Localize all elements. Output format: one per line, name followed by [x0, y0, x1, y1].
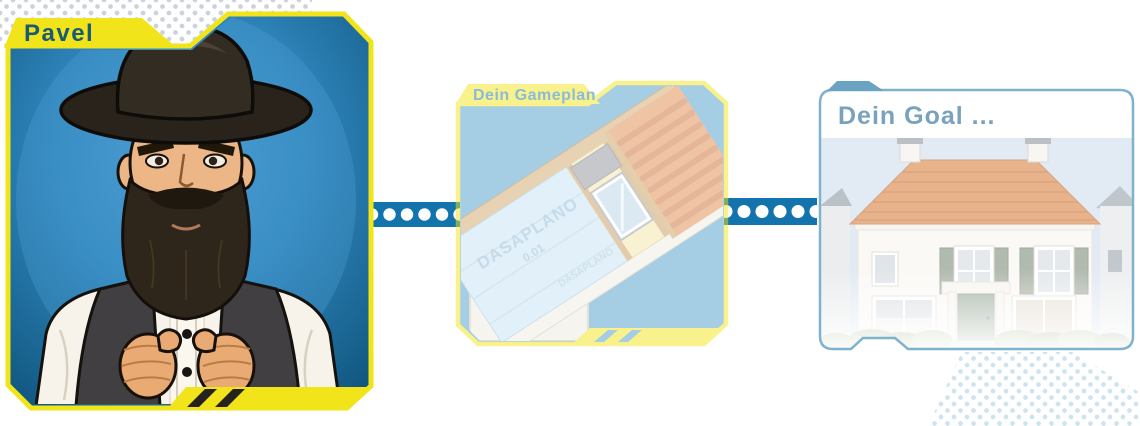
- panel-goal: Dein Goal ...: [805, 70, 1140, 360]
- house-illustration: [818, 138, 1133, 352]
- pavel-illustration: [16, 10, 356, 406]
- corner-stripes: [167, 387, 371, 409]
- goal-corner-tab: [827, 81, 884, 91]
- hero-graphic: Pavel DASAPLANO 0: [0, 0, 1140, 426]
- goal-title: Dein Goal ...: [838, 102, 995, 130]
- corner-stripes: [572, 328, 723, 344]
- gameplan-tab-label: Dein Gameplan: [473, 87, 596, 104]
- pavel-tab-label: Pavel: [24, 20, 94, 47]
- halftone-dots-bottom-right: [928, 352, 1140, 426]
- panel-gameplan: DASAPLANO 0.01 DASAPLANO: [440, 70, 740, 360]
- panel-pavel: Pavel: [0, 0, 380, 426]
